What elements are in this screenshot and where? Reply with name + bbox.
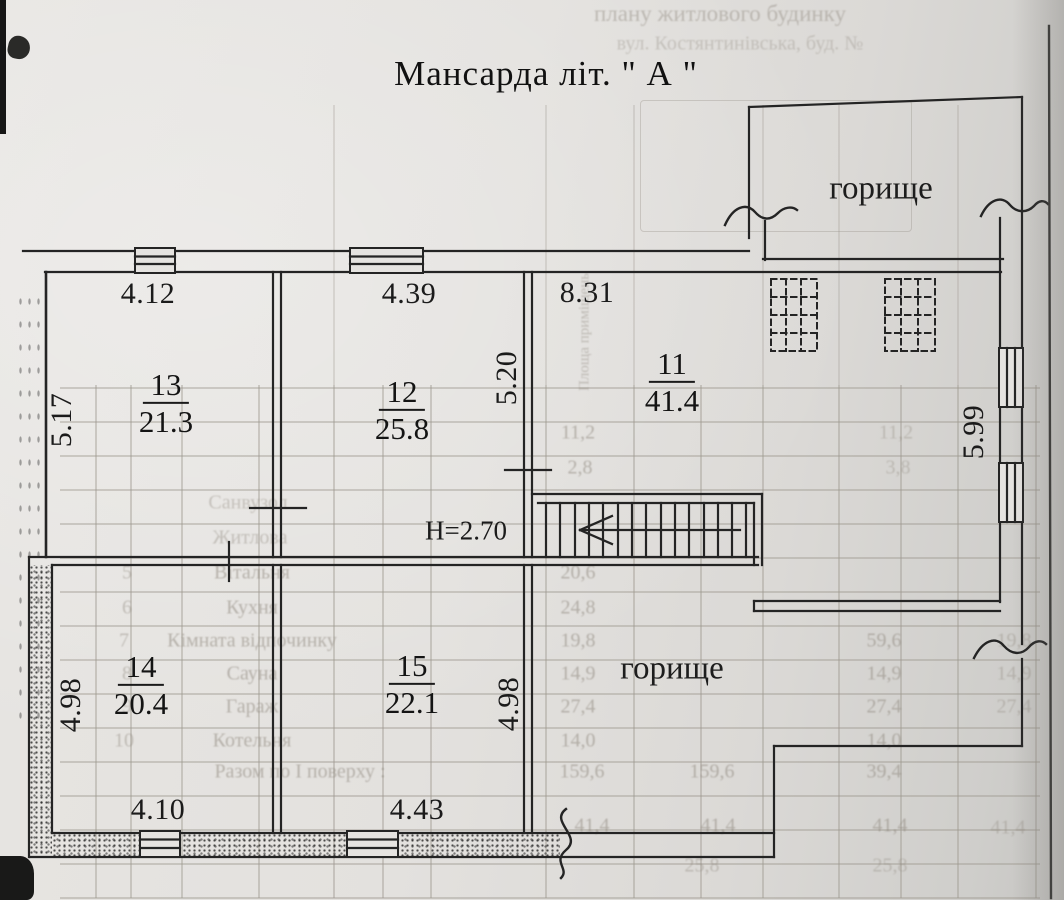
room-number: 13 xyxy=(139,369,193,400)
dimension-label: 4.10 xyxy=(131,793,186,827)
room-label-15: 1522.1 xyxy=(385,650,439,720)
attic-label-top: горище xyxy=(829,171,932,208)
attic-label-bottom: горище xyxy=(620,651,723,688)
room-number: 12 xyxy=(375,376,429,407)
room-area: 25.8 xyxy=(375,412,429,446)
room-number: 11 xyxy=(645,348,699,379)
plan-labels: Мансарда літ. " А " горище горище H=2.70… xyxy=(0,0,1064,900)
room-label-14: 1420.4 xyxy=(114,651,168,721)
page-edge-shadow xyxy=(1012,0,1064,900)
scan-blob-bottom-left xyxy=(0,856,34,900)
room-area: 22.1 xyxy=(385,686,439,720)
dimension-label: 5.20 xyxy=(490,351,524,406)
room-area: 20.4 xyxy=(114,687,168,721)
room-label-12: 1225.8 xyxy=(375,376,429,446)
scanned-floorplan-page: плану житлового будинкувул. Костянтинівс… xyxy=(0,0,1064,900)
room-label-11: 1141.4 xyxy=(645,348,699,418)
ceiling-height-label: H=2.70 xyxy=(425,516,507,547)
dimension-label: 8.31 xyxy=(560,276,615,310)
room-area: 41.4 xyxy=(645,384,699,418)
dimension-label: 4.43 xyxy=(390,793,445,827)
room-area: 21.3 xyxy=(139,405,193,439)
room-number: 14 xyxy=(114,651,168,682)
dimension-label: 5.17 xyxy=(45,393,79,448)
dimension-label: 4.98 xyxy=(54,678,88,733)
dimension-label: 4.98 xyxy=(492,677,526,732)
room-number: 15 xyxy=(385,650,439,681)
dimension-label: 5.99 xyxy=(957,405,991,460)
room-label-13: 1321.3 xyxy=(139,369,193,439)
scan-speckles-left-margin xyxy=(16,290,42,730)
dimension-label: 4.12 xyxy=(121,277,176,311)
scan-edge-artifact-left xyxy=(0,0,6,134)
dimension-label: 4.39 xyxy=(382,277,437,311)
page-title: Мансарда літ. " А " xyxy=(394,54,698,94)
